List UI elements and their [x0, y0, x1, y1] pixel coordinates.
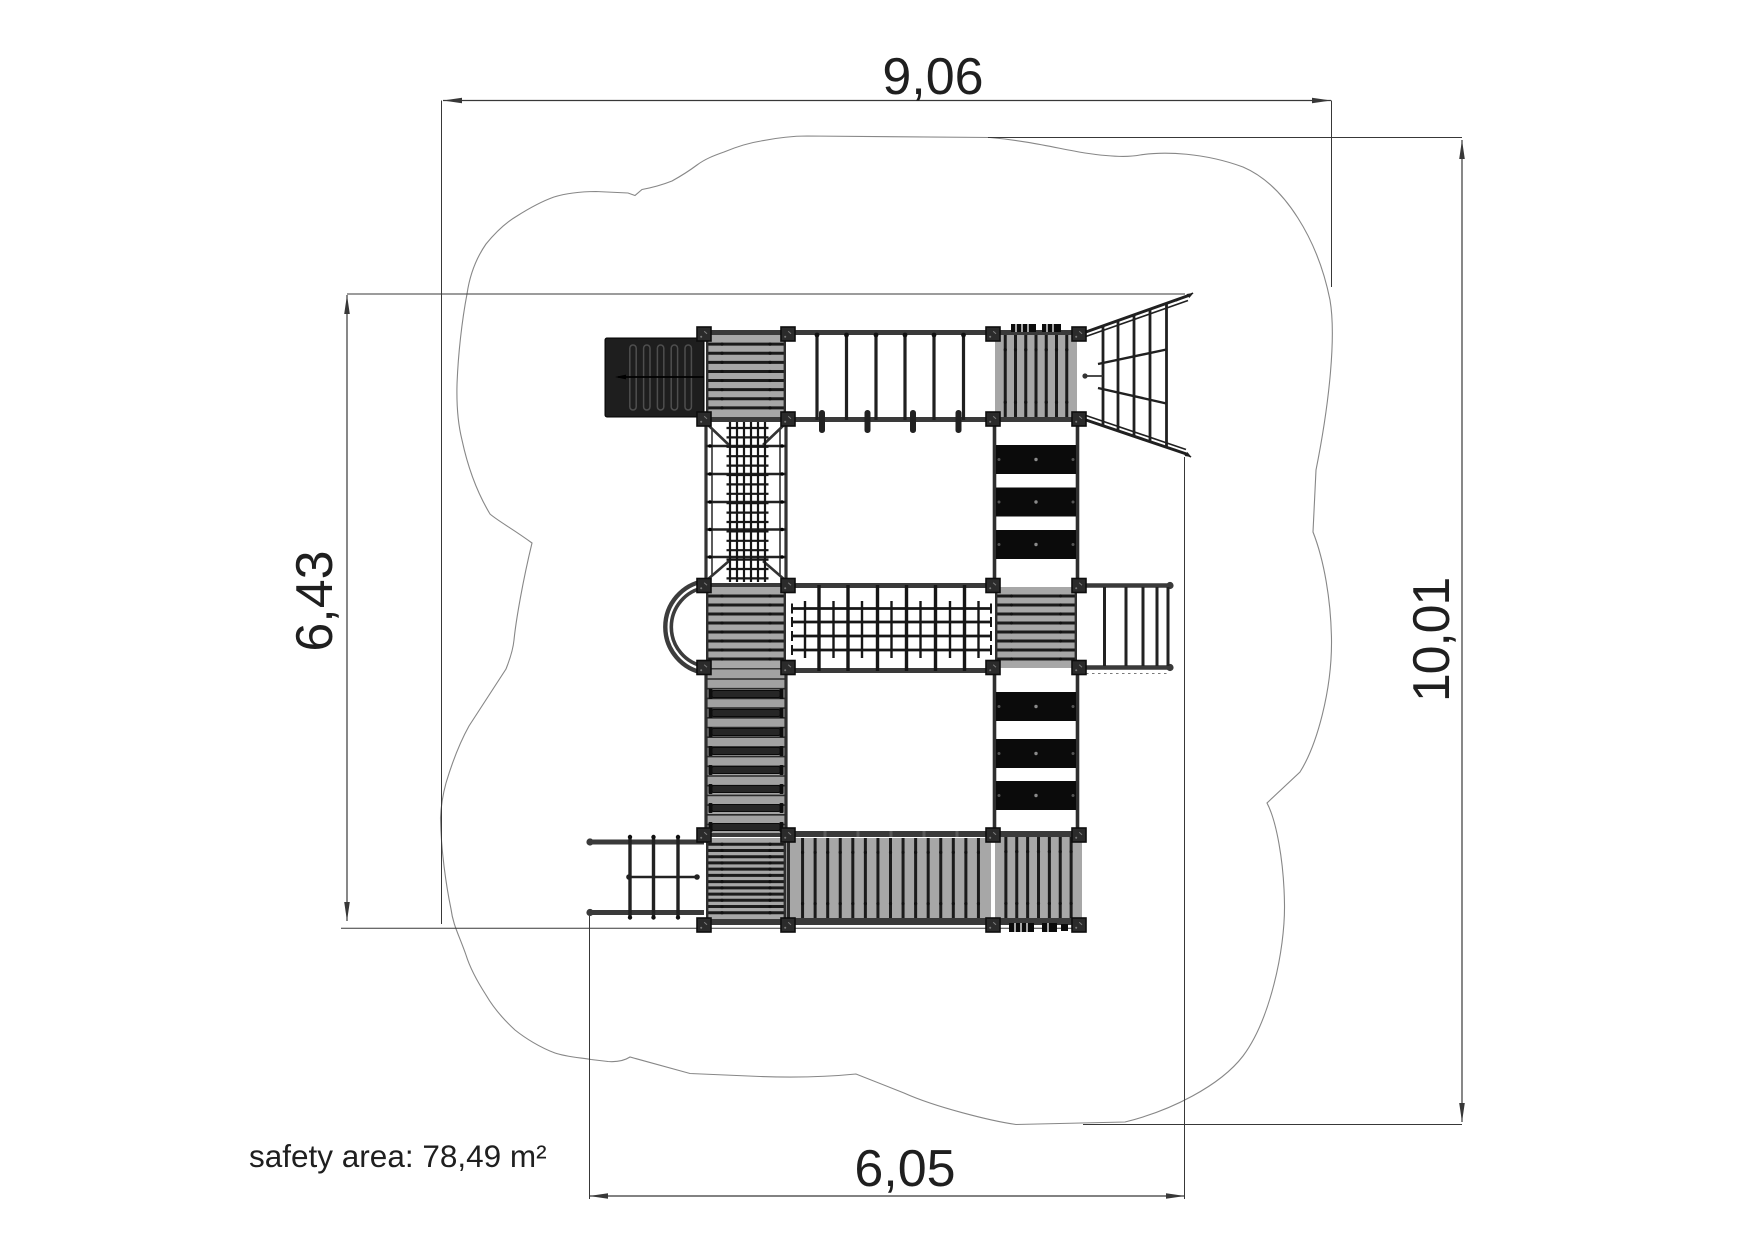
svg-text:9,06: 9,06	[882, 48, 983, 106]
svg-text:6,43: 6,43	[286, 550, 344, 651]
svg-text:10,01: 10,01	[1403, 578, 1461, 702]
svg-text:6,05: 6,05	[854, 1140, 955, 1198]
svg-text:safety area: 78,49 m²: safety area: 78,49 m²	[249, 1138, 547, 1174]
